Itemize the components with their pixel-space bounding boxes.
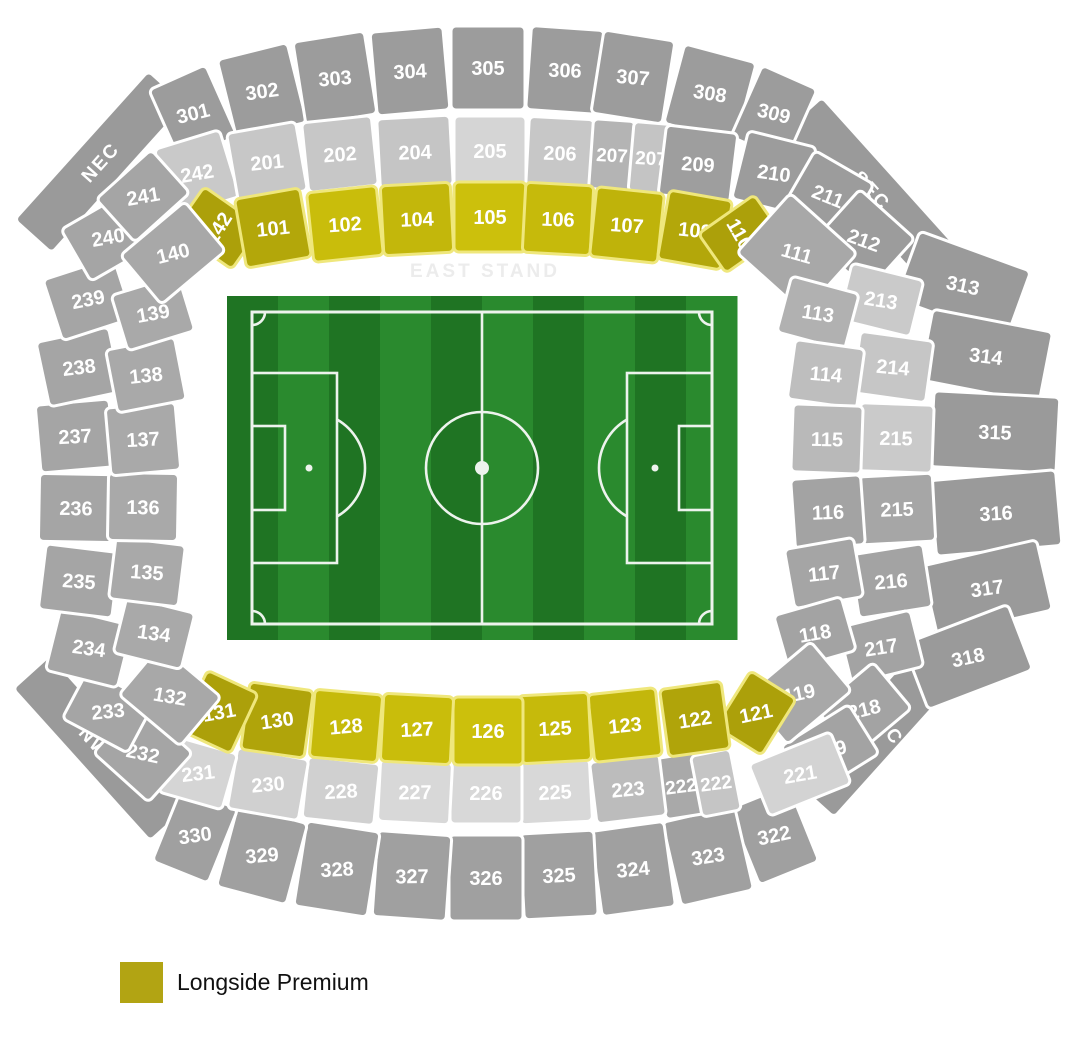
section-307-label: 307: [615, 66, 650, 91]
section-226-label: 226: [469, 783, 502, 805]
legend-label: Longside Premium: [177, 969, 369, 996]
section-122[interactable]: 122: [660, 681, 731, 757]
section-225-label: 225: [538, 781, 572, 805]
section-101-label: 101: [255, 217, 290, 242]
section-227-label: 227: [398, 782, 432, 805]
section-106-label: 106: [541, 209, 575, 232]
section-324[interactable]: 324: [590, 821, 675, 916]
section-202[interactable]: 202: [302, 116, 379, 193]
section-210-label: 210: [756, 161, 792, 187]
section-315[interactable]: 315: [930, 391, 1060, 473]
section-138[interactable]: 138: [106, 337, 187, 413]
section-223-label: 223: [611, 778, 646, 803]
section-215-1-label: 215: [879, 428, 913, 451]
section-327-label: 327: [395, 866, 429, 889]
section-206-label: 206: [543, 143, 577, 166]
section-117-label: 117: [807, 562, 841, 587]
section-104[interactable]: 104: [380, 182, 454, 256]
section-102[interactable]: 102: [307, 186, 384, 263]
section-201-label: 201: [249, 151, 284, 176]
section-316[interactable]: 316: [930, 470, 1062, 557]
section-123[interactable]: 123: [588, 688, 663, 763]
section-315-label: 315: [978, 422, 1012, 445]
section-136[interactable]: 136: [107, 472, 178, 541]
section-115-label: 115: [811, 429, 844, 452]
section-209-label: 209: [681, 153, 716, 177]
section-226[interactable]: 226: [450, 762, 522, 824]
pitch-stripe: [431, 296, 483, 640]
section-314[interactable]: 314: [919, 309, 1052, 403]
section-326[interactable]: 326: [449, 835, 523, 921]
section-215-1[interactable]: 215: [858, 403, 934, 474]
section-105[interactable]: 105: [454, 182, 526, 252]
section-101[interactable]: 101: [234, 188, 311, 268]
section-116-label: 116: [812, 502, 845, 525]
section-235[interactable]: 235: [38, 544, 119, 619]
section-205-label: 205: [473, 141, 506, 163]
section-237-label: 237: [58, 425, 92, 449]
section-230-label: 230: [251, 773, 286, 798]
section-215-2-label: 215: [880, 499, 914, 522]
section-306-label: 306: [548, 60, 582, 83]
section-222-1-label: 222: [664, 775, 698, 800]
pitch-stripe: [533, 296, 585, 640]
section-303[interactable]: 303: [293, 31, 377, 125]
stadium-map: NECSECNWCSWC3013023033043053063073083093…: [0, 0, 1089, 1051]
section-104-label: 104: [400, 209, 435, 232]
section-225[interactable]: 225: [517, 759, 592, 825]
section-228-label: 228: [324, 780, 358, 804]
section-305[interactable]: 305: [451, 26, 525, 110]
section-317-label: 317: [969, 576, 1005, 602]
section-302-label: 302: [244, 79, 280, 105]
section-328[interactable]: 328: [294, 821, 381, 918]
section-238-label: 238: [61, 355, 97, 381]
section-107-label: 107: [610, 214, 645, 238]
legend: Longside Premium: [120, 962, 369, 1003]
section-305-label: 305: [471, 58, 504, 80]
section-330-label: 330: [177, 823, 213, 849]
section-316-label: 316: [979, 502, 1013, 526]
section-231-label: 231: [180, 761, 216, 787]
section-207-1-label: 207: [596, 145, 629, 168]
legend-swatch-longside-premium: [120, 962, 163, 1003]
section-304[interactable]: 304: [370, 26, 450, 116]
section-204[interactable]: 204: [377, 115, 454, 189]
section-116[interactable]: 116: [791, 475, 866, 550]
section-325[interactable]: 325: [520, 830, 598, 920]
section-214-label: 214: [875, 356, 911, 381]
section-228[interactable]: 228: [302, 756, 380, 825]
section-135-label: 135: [130, 561, 165, 585]
section-327[interactable]: 327: [372, 831, 452, 922]
east-stand-label: EAST STAND: [410, 261, 560, 282]
section-125-label: 125: [538, 717, 572, 741]
section-235-label: 235: [62, 570, 97, 594]
section-325-label: 325: [542, 864, 576, 888]
section-303-label: 303: [318, 67, 353, 92]
section-125[interactable]: 125: [518, 692, 591, 764]
section-215-2[interactable]: 215: [858, 473, 935, 545]
section-114-label: 114: [809, 363, 844, 388]
section-236[interactable]: 236: [38, 473, 113, 542]
section-137-label: 137: [126, 428, 160, 452]
section-115[interactable]: 115: [791, 404, 863, 474]
section-114[interactable]: 114: [787, 339, 865, 408]
section-127[interactable]: 127: [380, 693, 453, 765]
section-135[interactable]: 135: [108, 537, 185, 607]
section-128[interactable]: 128: [309, 689, 383, 763]
section-126[interactable]: 126: [453, 697, 523, 765]
section-105-label: 105: [473, 207, 506, 229]
section-328-label: 328: [320, 858, 354, 882]
section-136-label: 136: [126, 497, 160, 520]
section-138-label: 138: [128, 364, 163, 389]
section-117[interactable]: 117: [784, 537, 863, 608]
section-202-label: 202: [323, 143, 358, 167]
section-123-label: 123: [607, 714, 642, 739]
section-222-2-label: 222: [699, 772, 733, 797]
section-324-label: 324: [615, 857, 651, 882]
section-227[interactable]: 227: [377, 759, 452, 825]
pitch: [227, 296, 738, 640]
section-223[interactable]: 223: [589, 754, 666, 824]
section-107[interactable]: 107: [590, 187, 665, 264]
section-326-label: 326: [469, 868, 502, 890]
section-106[interactable]: 106: [522, 182, 594, 255]
pitch-stripe: [380, 296, 432, 640]
section-204-label: 204: [398, 142, 433, 165]
section-102-label: 102: [328, 213, 363, 237]
section-205[interactable]: 205: [454, 116, 526, 186]
section-137[interactable]: 137: [105, 402, 181, 476]
section-126-label: 126: [471, 721, 504, 743]
section-233-label: 233: [90, 700, 125, 725]
section-130-label: 130: [259, 708, 295, 734]
pitch-stripe: [482, 296, 534, 640]
section-127-label: 127: [400, 718, 434, 742]
section-307[interactable]: 307: [591, 30, 675, 124]
section-128-label: 128: [329, 715, 364, 740]
section-237[interactable]: 237: [35, 399, 115, 473]
section-314-label: 314: [968, 344, 1005, 370]
section-206[interactable]: 206: [526, 116, 595, 189]
section-304-label: 304: [393, 60, 428, 84]
section-216-label: 216: [874, 570, 909, 595]
section-329-label: 329: [245, 844, 280, 869]
section-236-label: 236: [59, 498, 93, 521]
section-214[interactable]: 214: [852, 331, 934, 403]
